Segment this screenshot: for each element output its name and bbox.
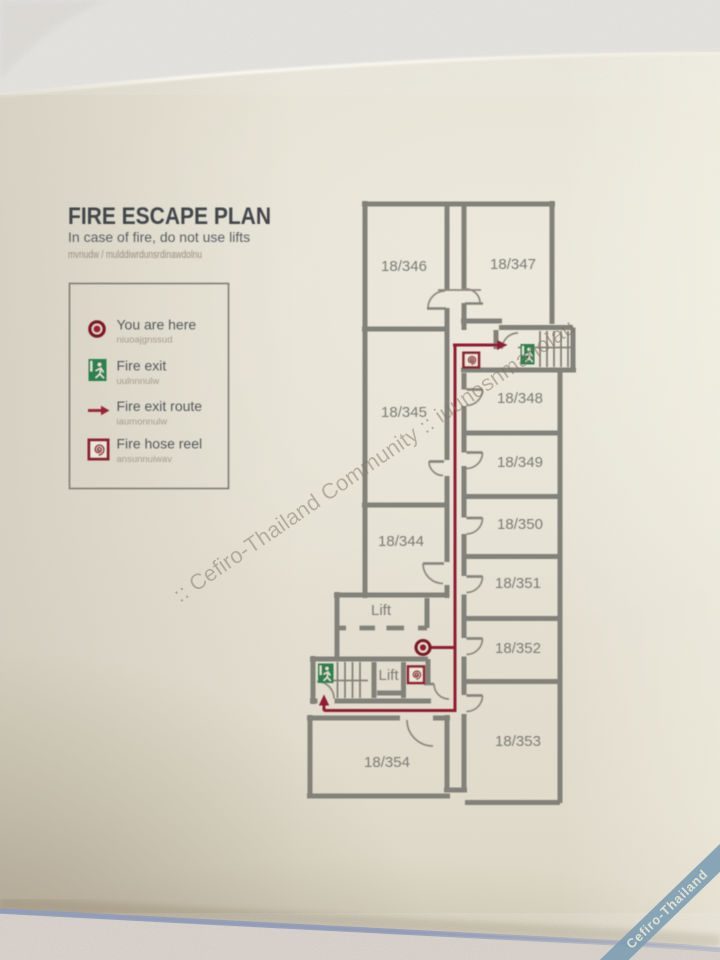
svg-text:mvnudw / mulddiwrdunsrdinawdol: mvnudw / mulddiwrdunsrdinawdolnu	[68, 249, 202, 261]
svg-text:18/350: 18/350	[497, 516, 543, 533]
svg-text:18/354: 18/354	[364, 754, 410, 771]
svg-text:Fire hose reel: Fire hose reel	[117, 436, 203, 452]
svg-text:Lift: Lift	[378, 667, 399, 684]
svg-text:iaumonnulw: iaumonnulw	[117, 417, 168, 428]
svg-text:18/344: 18/344	[378, 533, 424, 550]
svg-text:18/353: 18/353	[495, 733, 541, 750]
svg-text:18/348: 18/348	[497, 390, 543, 407]
svg-text:FIRE ESCAPE PLAN: FIRE ESCAPE PLAN	[68, 203, 271, 230]
svg-text:In case of fire, do not use li: In case of fire, do not use lifts	[68, 229, 250, 245]
svg-text:niuoajgnssud: niuoajgnssud	[117, 335, 173, 346]
svg-text:You are here: You are here	[117, 317, 197, 333]
svg-text:18/347: 18/347	[490, 256, 536, 273]
svg-text:18/351: 18/351	[495, 575, 541, 592]
svg-text:Fire exit route: Fire exit route	[117, 398, 203, 414]
svg-text:18/349: 18/349	[497, 454, 543, 471]
svg-text:Lift: Lift	[371, 602, 392, 619]
svg-text:uulnnnulw: uulnnnulw	[117, 376, 160, 387]
svg-text:ansunnuiwav: ansunnuiwav	[117, 454, 173, 465]
svg-text:18/352: 18/352	[495, 640, 541, 657]
svg-text:Fire exit: Fire exit	[117, 358, 167, 374]
svg-text:18/346: 18/346	[381, 258, 427, 275]
